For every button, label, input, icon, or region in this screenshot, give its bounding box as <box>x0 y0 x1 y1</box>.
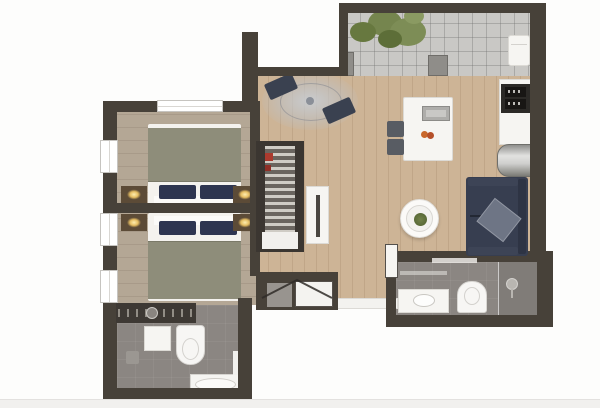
shower-zone-floor <box>498 262 538 315</box>
window-mullion <box>158 106 222 107</box>
red-accent-item <box>265 153 273 161</box>
washbasin-cabinet <box>144 326 171 351</box>
wall-headboard-divider <box>112 203 258 213</box>
bed-upper <box>148 124 241 205</box>
wardrobe-base-cabinet <box>262 232 298 249</box>
window-mullion <box>109 271 110 302</box>
door-swing-lines <box>256 272 338 302</box>
pillow <box>200 221 237 235</box>
window-mullion <box>109 214 110 245</box>
appliance-display <box>505 87 526 97</box>
floor-plan <box>0 0 600 408</box>
pillow <box>159 185 196 199</box>
serving-tray <box>422 106 450 121</box>
wall-pillar <box>242 32 258 110</box>
table-plant <box>414 213 427 226</box>
shower-stem <box>511 289 513 298</box>
dresser-counter <box>116 303 196 323</box>
red-accent-item <box>265 165 271 171</box>
toilet <box>457 281 487 313</box>
plant-leaf-cluster <box>378 30 402 48</box>
footer-strip <box>0 399 600 408</box>
bed-lower <box>148 213 241 301</box>
bed-blanket <box>148 128 241 182</box>
window-bedroom-top <box>157 100 223 112</box>
sofa-armrest <box>468 247 518 255</box>
wall-bathroom-left-bottom <box>103 388 252 399</box>
balcony-plant <box>350 8 430 56</box>
bed-blanket <box>148 241 241 299</box>
toilet-bowl-line <box>182 338 199 360</box>
sofa <box>466 177 528 256</box>
plant-leaf-cluster <box>350 22 376 42</box>
sink-basin <box>413 294 435 307</box>
wall-right <box>530 3 546 262</box>
sideboard <box>306 186 329 244</box>
rug-center-dot <box>306 97 314 105</box>
entry-vestibule <box>256 272 338 310</box>
dining-table <box>403 97 453 161</box>
wall-balcony-top <box>341 3 546 13</box>
shower-threshold <box>432 258 477 263</box>
appliance-display <box>505 99 526 109</box>
window-bedroom-left <box>100 213 118 246</box>
floor-plan-canvas <box>0 0 600 408</box>
lamp-glow <box>125 216 143 229</box>
nightstand <box>121 186 147 203</box>
window-bedroom-left <box>100 270 118 303</box>
wall-balcony-left <box>339 3 348 76</box>
balcony-door-post <box>428 55 448 76</box>
counter-knob <box>146 307 158 319</box>
vanity-sink <box>398 289 449 313</box>
wardrobe <box>256 141 304 252</box>
window-mullion <box>109 141 110 172</box>
vanity-shelf <box>400 271 447 275</box>
sideboard-handle <box>316 195 320 237</box>
sofa-armrest <box>468 178 518 186</box>
lamp-glow <box>125 188 143 201</box>
wall-bathroom-right-right <box>537 251 553 327</box>
toilet <box>176 325 205 365</box>
wall-bathroom-left-right <box>238 298 252 398</box>
coffee-table <box>400 199 439 238</box>
oven-microwave-stack <box>501 84 530 113</box>
tray-inner <box>426 110 446 117</box>
floor-drain <box>126 351 139 364</box>
window-bedroom-left <box>100 140 118 173</box>
lounge-chair <box>508 35 530 66</box>
fridge <box>497 144 532 177</box>
dining-chair <box>387 121 404 137</box>
nightstand <box>121 214 147 231</box>
pillow <box>159 221 196 235</box>
sofa-throw-blanket <box>476 198 521 243</box>
bathroom-door-leaf <box>385 244 398 278</box>
fruit <box>427 132 434 139</box>
dining-chair <box>387 139 404 155</box>
wall-living-top <box>254 67 344 76</box>
wall-bathroom-right-bottom <box>386 315 553 327</box>
pillow <box>200 185 237 199</box>
lounge-chair-fold <box>511 44 527 45</box>
toilet-bowl-line <box>464 287 480 305</box>
